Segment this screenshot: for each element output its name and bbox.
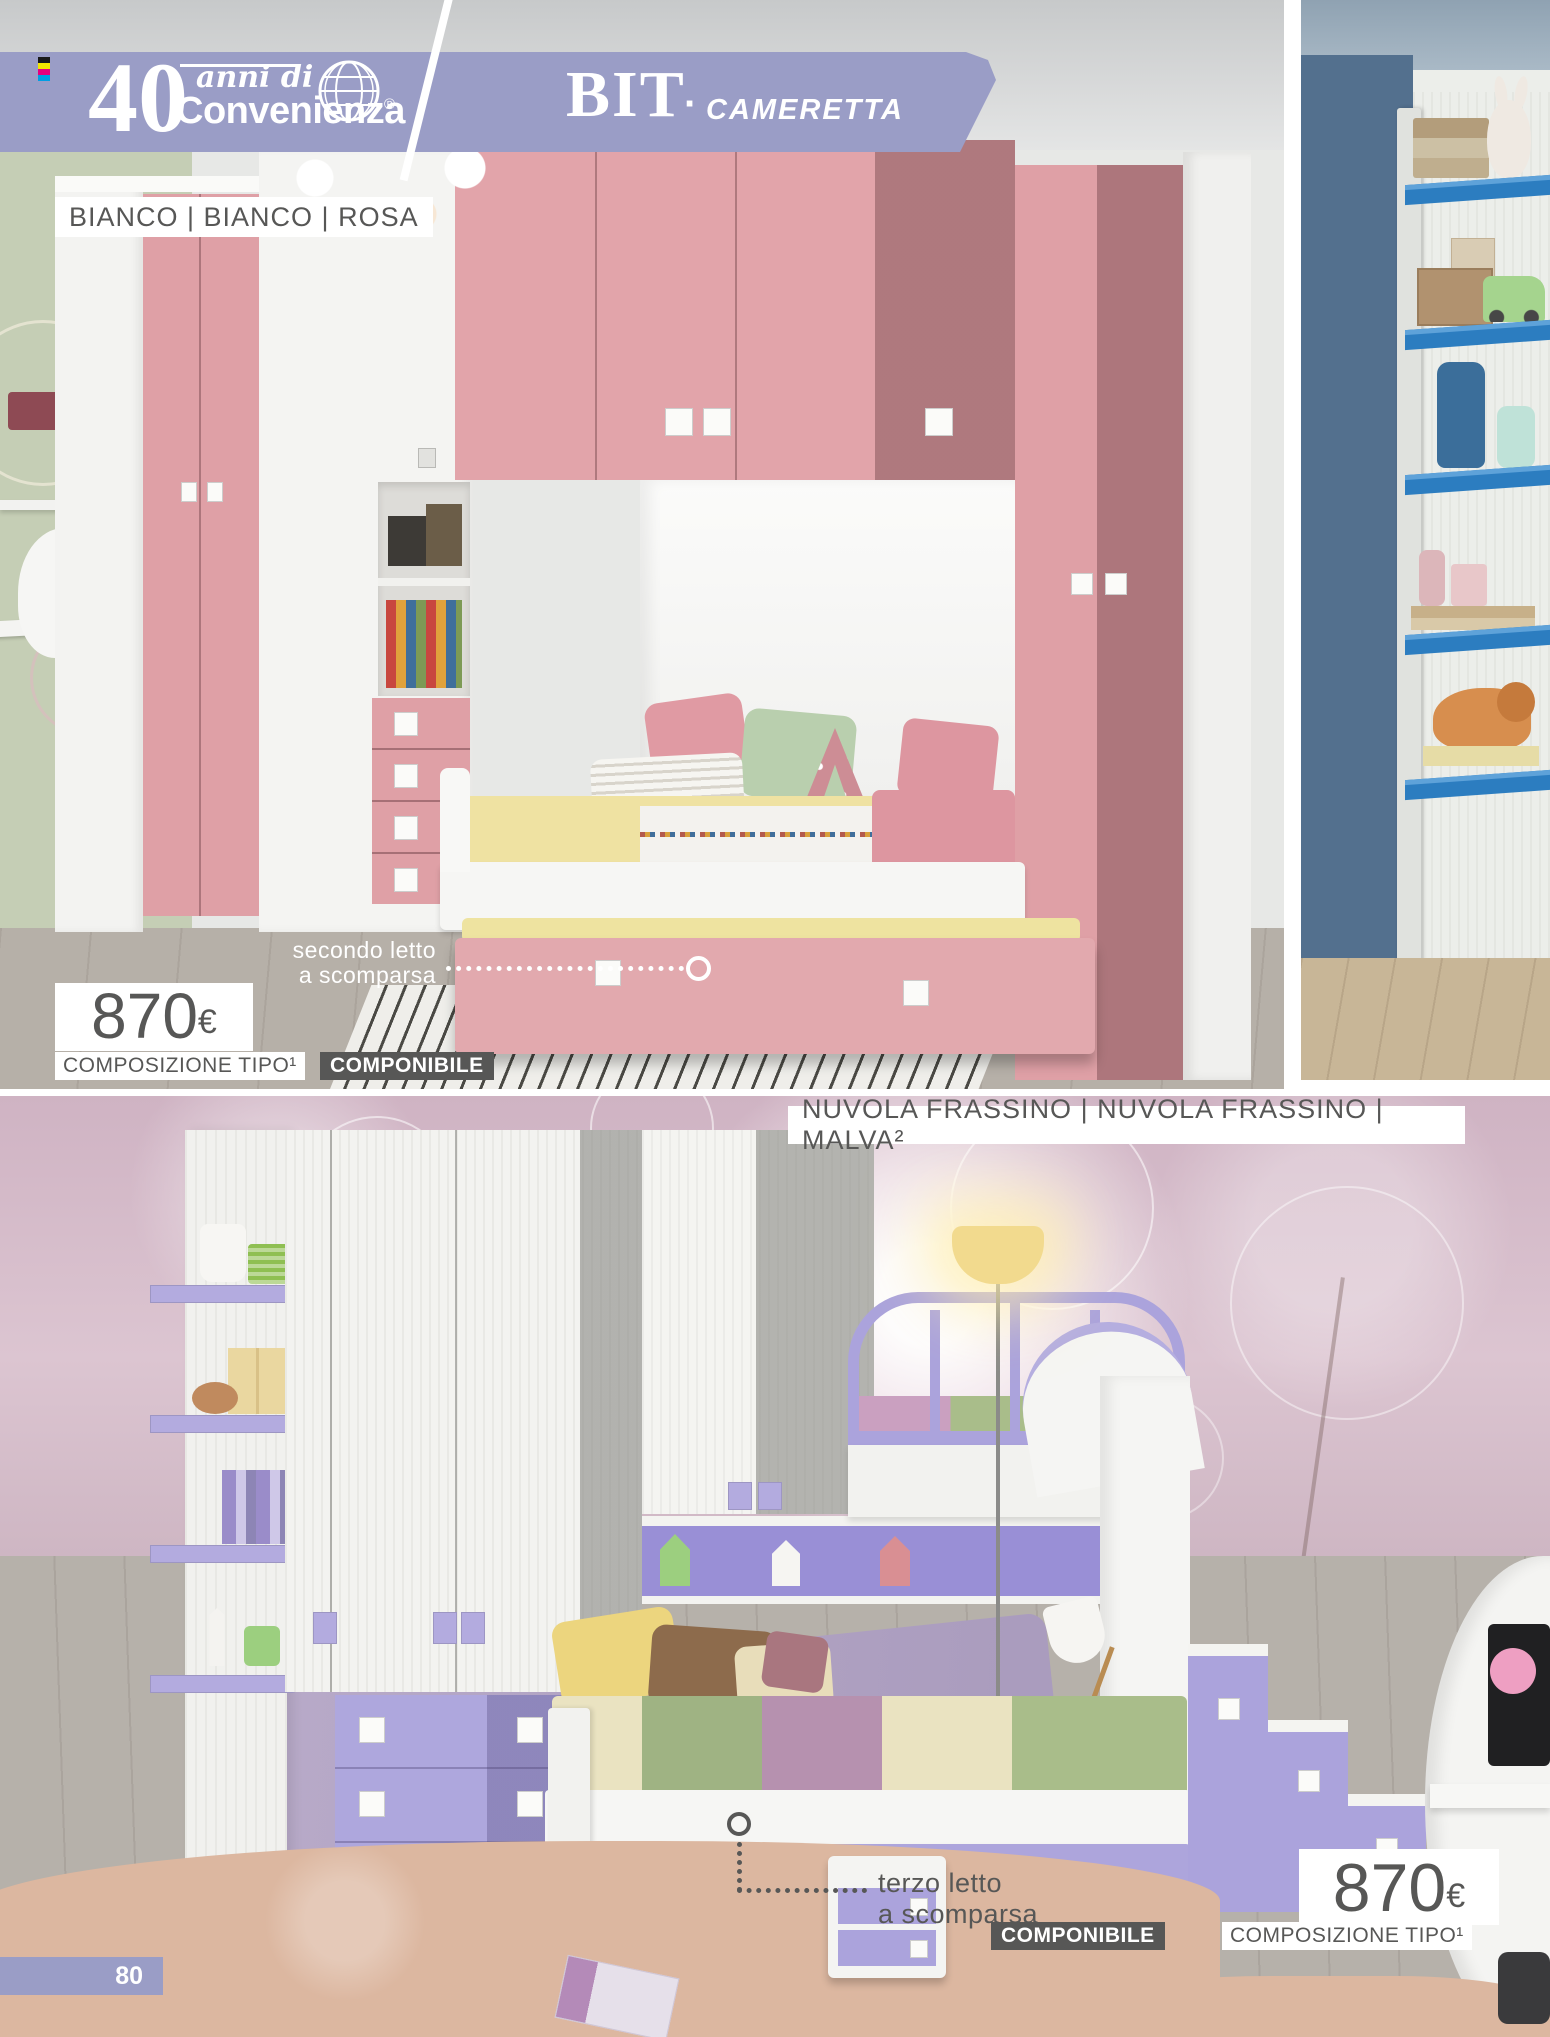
cabinet-handle (665, 408, 693, 436)
callout-line1: terzo letto (878, 1868, 1038, 1899)
title-separator: · (684, 82, 697, 127)
leader-target-circle (727, 1812, 751, 1836)
rail-bar (1010, 1302, 1020, 1442)
drawer-handle (910, 1940, 928, 1958)
toy-birdhouse (772, 1540, 800, 1586)
finish-label-bottom-text: NUVOLA FRASSINO | NUVOLA FRASSINO | MALV… (802, 1094, 1451, 1156)
door-handle (461, 1612, 485, 1644)
nightstand-drawer (838, 1930, 936, 1966)
drawer-handle (394, 712, 418, 736)
photo-pink-bedroom (0, 0, 1284, 1089)
pen-cup-pink (1451, 564, 1487, 606)
drawer-handle (394, 816, 418, 840)
purple-books (222, 1470, 290, 1544)
catalog-page: 40 anni di Convenienza ® BIT · CAMERETTA… (0, 0, 1550, 2037)
toy-crate (1417, 268, 1493, 326)
vase-blue (1437, 362, 1485, 468)
price-currency-bottom: € (1446, 1873, 1465, 1921)
floor (1301, 958, 1550, 1080)
stair-drawer-handle (1218, 1698, 1240, 1720)
bed-blanket (552, 1696, 1187, 1796)
composition-note-top: COMPOSIZIONE TIPO¹ (55, 1052, 305, 1080)
drawer-handle (359, 1791, 385, 1817)
trundle-handle (903, 980, 929, 1006)
photo-frame (426, 504, 462, 566)
blanket-pompom (640, 806, 890, 868)
corner-wardrobe-side (55, 184, 143, 932)
callout-second-bed: secondo letto a scomparsa (220, 938, 436, 989)
bed-frame (545, 1790, 1190, 1848)
componibile-badge-bottom: COMPONIBILE (991, 1922, 1165, 1950)
drawer-handle (394, 764, 418, 788)
page-number-badge: 80 (0, 1957, 163, 1995)
leader-target-circle (686, 956, 711, 981)
rail-bar (930, 1310, 940, 1442)
door-handle (1105, 573, 1127, 595)
price-currency-top: € (198, 999, 217, 1047)
shelf-unit-stile (1397, 108, 1421, 966)
desk-top (1430, 1784, 1550, 1808)
finish-label-bottom: NUVOLA FRASSINO | NUVOLA FRASSINO | MALV… (788, 1106, 1465, 1144)
lilac-shelf (150, 1415, 300, 1433)
door-handle (433, 1612, 457, 1644)
toy-van-green (1483, 276, 1545, 322)
componibile-badge-bottom-text: COMPONIBILE (1001, 1924, 1155, 1948)
photo-frame (388, 516, 428, 566)
floor-lamp-pole (996, 1282, 1000, 1762)
trundle-bed-front (455, 938, 1095, 1054)
green-jar (244, 1626, 280, 1666)
open-shelf-niche (378, 482, 470, 696)
pink-pompom-headphones (1490, 1648, 1536, 1694)
computer-monitor (1488, 1624, 1550, 1766)
composition-note-bottom: COMPOSIZIONE TIPO¹ (1222, 1922, 1472, 1950)
dandelion-decor (1230, 1186, 1464, 1420)
door-handle (207, 482, 223, 502)
drawer-handle (394, 868, 418, 892)
bread-ornament (192, 1382, 238, 1414)
componibile-badge-top-text: COMPONIBILE (330, 1054, 484, 1078)
triceratops-frill (1497, 682, 1535, 722)
yellow-folders (228, 1348, 290, 1414)
bed-armrest (440, 768, 470, 872)
page-number: 80 (115, 1962, 143, 1991)
bridge-cabinets (642, 1130, 874, 1514)
finish-label-top-text: BIANCO | BIANCO | ROSA (69, 202, 419, 233)
cabinet-handle (925, 408, 953, 436)
drawer-handle (517, 1717, 543, 1743)
brand-40: 40 (88, 52, 188, 144)
door-handle (181, 482, 197, 502)
finish-label-top: BIANCO | BIANCO | ROSA (55, 197, 433, 237)
price-amount-bottom: 870 (1333, 1856, 1446, 1921)
trundle-handle (595, 960, 621, 986)
brand-registered: ® (384, 96, 395, 113)
wardrobe-doors (285, 1130, 642, 1692)
corner-wardrobe-top (55, 176, 260, 192)
leader-dots-vertical (737, 1842, 742, 1892)
cabinet-handle (728, 1482, 752, 1510)
toy-birdhouse-red (880, 1536, 910, 1586)
brand-name: Convenienza (176, 90, 405, 133)
book-flat (1423, 746, 1539, 766)
composition-note-bottom-text: COMPOSIZIONE TIPO¹ (1230, 1924, 1464, 1948)
shelf-unit-back (1413, 92, 1550, 966)
lilac-shelf (150, 1545, 300, 1563)
price-amount-top: 870 (91, 986, 198, 1047)
collection-title: BIT (566, 62, 686, 128)
wardrobe-side-panel (1183, 152, 1251, 1080)
callout-line1: secondo letto (220, 938, 436, 963)
desk-chair-wheel (1498, 1952, 1550, 2024)
bunny-figurine (1487, 100, 1531, 178)
pillow-plum (760, 1630, 829, 1694)
price-box-bottom: 870 € (1299, 1849, 1499, 1925)
leader-dots (446, 966, 684, 971)
books (386, 600, 462, 688)
drawer-handle (359, 1717, 385, 1743)
drawer-handle (517, 1791, 543, 1817)
green-basket (248, 1244, 290, 1284)
toy-green-house (660, 1534, 690, 1586)
stair-step (1188, 1644, 1268, 1912)
lilac-shelf (150, 1285, 300, 1303)
cabinet-handle (703, 408, 731, 436)
stair-drawer-handle (1298, 1770, 1320, 1792)
componibile-badge-top: COMPONIBILE (320, 1052, 494, 1080)
registration-mark-icon (38, 57, 50, 81)
beige-rug-right (1050, 1976, 1550, 2037)
leader-dots (737, 1888, 867, 1893)
vase-teal (1497, 406, 1535, 468)
cabinet-handle (758, 1482, 782, 1510)
header-band: 40 anni di Convenienza ® BIT · CAMERETTA (0, 52, 1000, 152)
white-jug (200, 1224, 246, 1282)
category-title: CAMERETTA (706, 94, 904, 127)
cabinet-handle (418, 448, 436, 468)
stacked-books (1413, 118, 1489, 178)
door-handle (313, 1612, 337, 1644)
door-handle (1071, 573, 1093, 595)
composition-note-top-text: COMPOSIZIONE TIPO¹ (63, 1054, 297, 1078)
corner-wardrobe-pink-doors (143, 194, 259, 916)
photo-corner-shelf (1301, 0, 1550, 1080)
blanket-pink (872, 790, 1015, 870)
shelf-board (378, 578, 470, 586)
price-box-top: 870 € (55, 983, 253, 1051)
callout-third-bed: terzo letto a scomparsa (878, 1868, 1038, 1930)
vase-pink (1419, 550, 1445, 606)
lilac-shelf (150, 1675, 300, 1693)
